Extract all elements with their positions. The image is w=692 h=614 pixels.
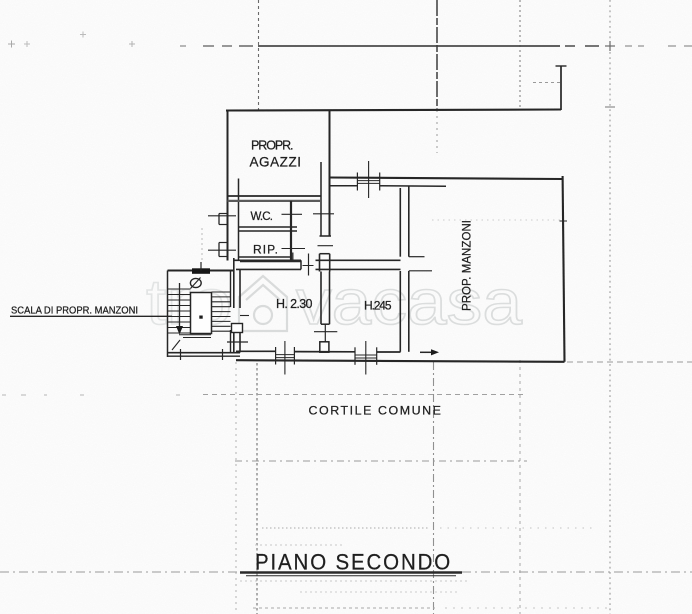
svg-text:PROPR.: PROPR. xyxy=(251,139,295,153)
svg-text:AGAZZI: AGAZZI xyxy=(250,155,303,170)
svg-text:SCALA DI PROPR. MANZONI: SCALA DI PROPR. MANZONI xyxy=(11,305,138,317)
svg-text:CORTILE COMUNE: CORTILE COMUNE xyxy=(309,404,443,418)
svg-text:RIP.: RIP. xyxy=(253,243,279,257)
svg-text:PIANO SECONDO: PIANO SECONDO xyxy=(255,550,452,575)
svg-text:H.245: H.245 xyxy=(364,299,392,313)
svg-text:PROP. MANZONI: PROP. MANZONI xyxy=(462,219,474,311)
svg-text:W.C.: W.C. xyxy=(251,211,274,223)
svg-text:H. 2.30: H. 2.30 xyxy=(276,297,313,311)
